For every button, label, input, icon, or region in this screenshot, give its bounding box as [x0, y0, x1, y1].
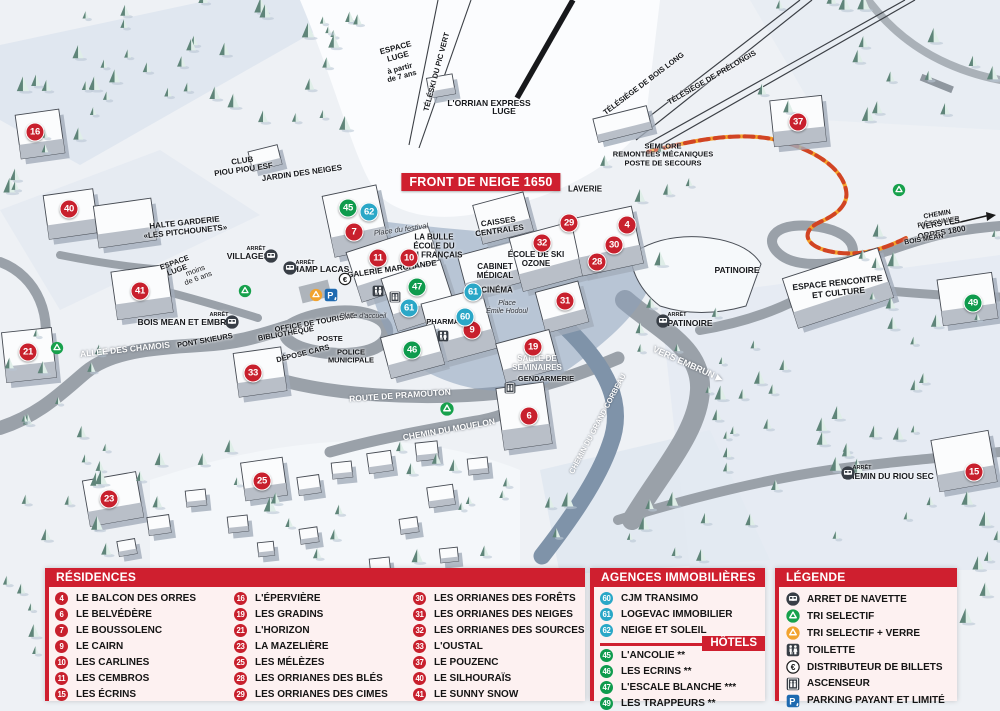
residence-number: 9 — [55, 640, 68, 653]
residences-header: RÉSIDENCES — [49, 568, 585, 587]
residence-label: LE BELVÉDÈRE — [76, 609, 152, 620]
residence-item: 19LES GRADINS — [234, 607, 413, 623]
map-marker-4: 4 — [618, 216, 637, 235]
hotel-label: LES ECRINS ** — [621, 666, 692, 677]
elevator-icon — [504, 382, 516, 394]
residence-number: 21 — [234, 624, 247, 637]
bus-icon — [225, 315, 239, 329]
map-marker-37: 37 — [789, 113, 808, 132]
residence-item: 32LES ORRIANES DES SOURCES — [413, 623, 581, 639]
toilet-icon — [785, 643, 800, 657]
hotel-number: 46 — [600, 665, 613, 678]
map-marker-19: 19 — [524, 338, 543, 357]
euro-icon: € — [785, 660, 800, 674]
residence-label: LES ORRIANES DES SOURCES — [434, 625, 585, 636]
agences-header: AGENCES IMMOBILIÈRES — [594, 568, 765, 587]
map-marker-61: 61 — [464, 283, 483, 302]
residence-label: LA MAZELIÈRE — [255, 641, 329, 652]
map-marker-6: 6 — [520, 407, 539, 426]
bus-icon — [283, 261, 297, 275]
residence-item: 37LE POUZENC — [413, 655, 581, 671]
legende-item: TOILETTE — [785, 642, 953, 659]
map-label: LAVERIE — [568, 186, 602, 195]
hotel-number: 47 — [600, 681, 613, 694]
legende-label: TRI SELECTIF — [807, 611, 874, 622]
map-marker-41: 41 — [131, 282, 150, 301]
residence-number: 15 — [55, 688, 68, 701]
residence-label: LE BALCON DES ORRES — [76, 593, 196, 604]
residence-label: LE POUZENC — [434, 657, 498, 668]
euro-icon: € — [339, 273, 352, 286]
map-marker-45: 45 — [339, 199, 358, 218]
hotel-label: LES TRAPPEURS ** — [621, 698, 715, 709]
residence-label: LES MÉLÈZES — [255, 657, 324, 668]
map-label: LUGE — [492, 107, 516, 117]
toilet-icon — [372, 285, 384, 297]
hotel-label: L'ANCOLIE ** — [621, 650, 685, 661]
residence-item: 25LES MÉLÈZES — [234, 655, 413, 671]
map-label: Place Émile Hodoul — [486, 300, 528, 316]
agences-panel: AGENCES IMMOBILIÈRES 60CJM TRANSIMO61LOG… — [590, 568, 765, 701]
map-marker-60: 60 — [456, 308, 475, 327]
agency-item: 61LOGEVAC IMMOBILIER — [600, 607, 761, 623]
legende-item: ARRET DE NAVETTE — [785, 591, 953, 608]
residence-number: 29 — [234, 688, 247, 701]
residence-item: 41LE SUNNY SNOW — [413, 686, 581, 702]
svg-text:€: € — [343, 275, 348, 284]
residence-number: 31 — [413, 608, 426, 621]
residence-item: 31LES ORRIANES DES NEIGES — [413, 607, 581, 623]
map-marker-61: 61 — [400, 299, 419, 318]
residence-number: 7 — [55, 624, 68, 637]
residences-panel: RÉSIDENCES 4LE BALCON DES ORRES6LE BELVÉ… — [45, 568, 585, 701]
residence-item: 16L'ÉPERVIÈRE — [234, 591, 413, 607]
residence-number: 6 — [55, 608, 68, 621]
residence-label: LES ÉCRINS — [76, 689, 136, 700]
map-label: Place d'accueil — [340, 313, 386, 321]
residence-number: 23 — [234, 640, 247, 653]
map-label: L'ORRIAN EXPRESS — [447, 99, 530, 109]
legende-label: TOILETTE — [807, 645, 855, 656]
residence-label: LE BOUSSOLENC — [76, 625, 162, 636]
residence-label: LE SILHOURAÏS — [434, 673, 511, 684]
residence-number: 4 — [55, 592, 68, 605]
map-label: CHEMIN DU RIOU SEC — [842, 472, 934, 482]
residence-item: 10LES CARLINES — [55, 655, 234, 671]
residence-item: 30LES ORRIANES DES FORÊTS — [413, 591, 581, 607]
residence-item: 29LES ORRIANES DES CIMES — [234, 686, 413, 702]
residence-item: 4LE BALCON DES ORRES — [55, 591, 234, 607]
map-marker-25: 25 — [253, 472, 272, 491]
map-marker-32: 32 — [533, 234, 552, 253]
map-label: PATINOIRE — [667, 319, 712, 329]
legende-panel: LÉGENDE ARRET DE NAVETTETRI SELECTIFTRI … — [775, 568, 957, 701]
residence-label: LES CEMBROS — [76, 673, 149, 684]
residence-number: 37 — [413, 656, 426, 669]
svg-text:P: P — [327, 290, 333, 300]
residence-label: LES GRADINS — [255, 609, 323, 620]
residence-label: LES ORRIANES DES BLÉS — [255, 673, 383, 684]
map-label: PATINOIRE — [714, 266, 759, 276]
parking-icon: P — [785, 694, 800, 708]
bus-icon — [841, 466, 855, 480]
residence-number: 28 — [234, 672, 247, 685]
recycle-green-icon — [893, 184, 906, 197]
residence-item: 28LES ORRIANES DES BLÉS — [234, 670, 413, 686]
map-marker-29: 29 — [560, 214, 579, 233]
legende-label: PARKING PAYANT ET LIMITÉ — [807, 695, 945, 706]
residence-label: LE CAIRN — [76, 641, 123, 652]
map-marker-7: 7 — [345, 223, 364, 242]
residence-label: LES ORRIANES DES CIMES — [255, 689, 388, 700]
bus-icon — [785, 592, 800, 606]
residence-label: LE SUNNY SNOW — [434, 689, 518, 700]
svg-text:€: € — [790, 662, 795, 672]
hotel-number: 49 — [600, 697, 613, 710]
residence-number: 11 — [55, 672, 68, 685]
hotel-number: 45 — [600, 649, 613, 662]
residence-number: 33 — [413, 640, 426, 653]
map-marker-21: 21 — [19, 343, 38, 362]
hotels-header: HÔTELS — [702, 636, 765, 651]
map-marker-40: 40 — [60, 200, 79, 219]
map-label: BOIS MEAN ET EMBRUN — [137, 318, 238, 328]
legende-item: €DISTRIBUTEUR DE BILLETS — [785, 659, 953, 676]
recycle-orange-icon — [785, 626, 800, 640]
map-marker-23: 23 — [100, 490, 119, 509]
hotel-label: L'ESCALE BLANCHE *** — [621, 682, 736, 693]
recycle-green-icon — [239, 285, 252, 298]
residence-label: LES ORRIANES DES FORÊTS — [434, 593, 576, 604]
hotel-item: 49LES TRAPPEURS ** — [600, 695, 761, 711]
agency-label: CJM TRANSIMO — [621, 593, 698, 604]
agency-item: 60CJM TRANSIMO — [600, 591, 761, 607]
residence-label: L'HORIZON — [255, 625, 310, 636]
legende-header: LÉGENDE — [779, 568, 957, 587]
legende-label: TRI SELECTIF + VERRE — [807, 628, 920, 639]
map-marker-11: 11 — [369, 249, 388, 268]
map-marker-47: 47 — [408, 278, 427, 297]
map-label: CABINET MÉDICAL — [477, 263, 513, 281]
legende-label: ASCENSEUR — [807, 678, 870, 689]
agency-number: 62 — [600, 624, 613, 637]
bus-icon — [264, 249, 278, 263]
residence-item: 23LA MAZELIÈRE — [234, 639, 413, 655]
map-marker-28: 28 — [588, 253, 607, 272]
residence-number: 19 — [234, 608, 247, 621]
recycle-green-icon — [785, 609, 800, 623]
hotel-item: 46LES ECRINS ** — [600, 664, 761, 680]
residence-item: 11LES CEMBROS — [55, 670, 234, 686]
map-marker-46: 46 — [403, 341, 422, 360]
residence-number: 10 — [55, 656, 68, 669]
map-label: ÉCOLE DE SKI OZONE — [508, 251, 564, 269]
map-label: SEMLORE REMONTÉES MÉCANIQUES POSTE DE SE… — [613, 142, 713, 167]
residence-label: L'ÉPERVIÈRE — [255, 593, 321, 604]
agency-number: 61 — [600, 608, 613, 621]
toilet-icon — [437, 330, 449, 342]
map-label: VILLAGES — [227, 252, 270, 262]
hotels-divider: HÔTELS — [600, 643, 761, 646]
residence-number: 30 — [413, 592, 426, 605]
map-label: ARRÊT — [853, 465, 872, 471]
residence-item: 21L'HORIZON — [234, 623, 413, 639]
svg-text:P: P — [789, 696, 795, 706]
residence-item: 33L'OUSTAL — [413, 639, 581, 655]
recycle-orange-icon — [310, 289, 323, 302]
map-marker-30: 30 — [605, 236, 624, 255]
map-marker-49: 49 — [964, 294, 983, 313]
legende-label: ARRET DE NAVETTE — [807, 594, 907, 605]
elevator-icon — [389, 291, 401, 303]
parking-icon: P — [324, 288, 338, 302]
residence-item: 7LE BOUSSOLENC — [55, 623, 234, 639]
map-label: SALLE DE SÉMINAIRES — [512, 355, 562, 373]
map-marker-31: 31 — [556, 292, 575, 311]
agency-number: 60 — [600, 592, 613, 605]
map-marker-16: 16 — [26, 123, 45, 142]
residence-item: 9LE CAIRN — [55, 639, 234, 655]
map-label: POSTE — [317, 335, 342, 343]
residence-item: 15LES ÉCRINS — [55, 686, 234, 702]
residence-number: 16 — [234, 592, 247, 605]
map-marker-15: 15 — [965, 463, 984, 482]
residence-item: 6LE BELVÉDÈRE — [55, 607, 234, 623]
legende-item: TRI SELECTIF — [785, 608, 953, 625]
agency-label: NEIGE ET SOLEIL — [621, 625, 707, 636]
legende-item: ASCENSEUR — [785, 675, 953, 692]
hotel-item: 47L'ESCALE BLANCHE *** — [600, 679, 761, 695]
front-de-neige-banner: FRONT DE NEIGE 1650 — [401, 173, 560, 191]
residence-label: L'OUSTAL — [434, 641, 483, 652]
recycle-green-icon — [440, 402, 454, 416]
map-label: GENDARMERIE — [518, 375, 574, 383]
residence-number: 25 — [234, 656, 247, 669]
map-label: POLICE MUNICIPALE — [328, 349, 374, 366]
map-marker-62: 62 — [360, 203, 379, 222]
residence-number: 40 — [413, 672, 426, 685]
map-label: CINÉMA — [481, 287, 513, 296]
legende-item: TRI SELECTIF + VERRE — [785, 625, 953, 642]
recycle-green-icon — [51, 342, 64, 355]
map-marker-33: 33 — [244, 364, 263, 383]
agency-label: LOGEVAC IMMOBILIER — [621, 609, 732, 620]
legende-label: DISTRIBUTEUR DE BILLETS — [807, 662, 943, 673]
map-label: ARRÊT — [668, 312, 687, 318]
residence-label: LES ORRIANES DES NEIGES — [434, 609, 573, 620]
map-marker-10: 10 — [400, 249, 419, 268]
residence-item: 40LE SILHOURAÏS — [413, 670, 581, 686]
elevator-icon — [785, 677, 800, 691]
residence-number: 41 — [413, 688, 426, 701]
bus-icon — [656, 314, 670, 328]
residence-number: 32 — [413, 624, 426, 637]
residence-label: LES CARLINES — [76, 657, 149, 668]
